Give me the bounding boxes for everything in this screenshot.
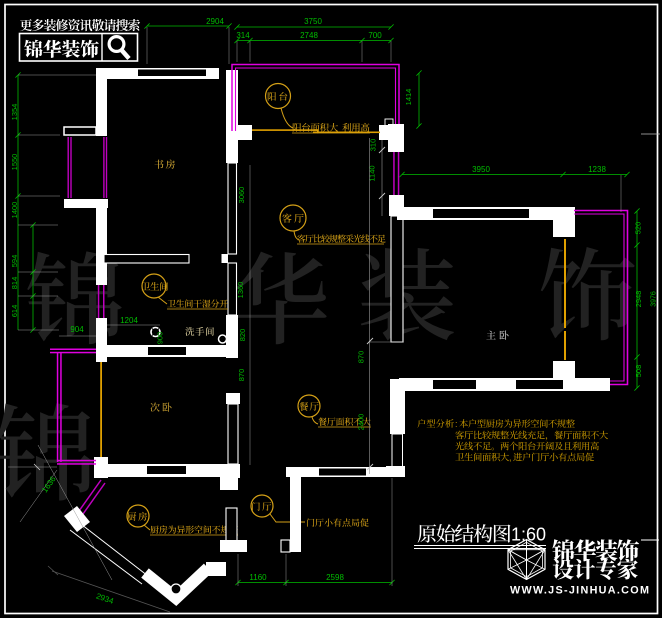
svg-text:700: 700 (368, 31, 382, 40)
svg-text:1204: 1204 (120, 316, 138, 325)
svg-text:820: 820 (238, 329, 247, 342)
svg-text:1:60: 1:60 (511, 525, 546, 545)
svg-text:508: 508 (634, 365, 643, 378)
svg-text:3060: 3060 (237, 187, 246, 204)
svg-text:,: , (509, 453, 512, 463)
svg-text:900: 900 (156, 332, 165, 345)
svg-text:2598: 2598 (326, 573, 344, 582)
svg-text:WWW.JS-JINHUA.COM: WWW.JS-JINHUA.COM (510, 585, 650, 597)
svg-text:3950: 3950 (472, 165, 490, 174)
svg-text:310: 310 (369, 139, 378, 152)
svg-text:1360: 1360 (236, 282, 245, 299)
svg-text:3750: 3750 (304, 17, 322, 26)
svg-text:2904: 2904 (206, 17, 224, 26)
svg-text:2748: 2748 (300, 31, 318, 40)
svg-text:1140: 1140 (368, 165, 377, 181)
svg-text:1160: 1160 (249, 573, 267, 582)
svg-text:2400: 2400 (357, 414, 366, 431)
svg-text:870: 870 (237, 369, 246, 382)
svg-text:1238: 1238 (588, 165, 606, 174)
svg-text:904: 904 (70, 325, 84, 334)
svg-text:870: 870 (357, 351, 366, 364)
svg-text:1414: 1414 (404, 89, 413, 106)
svg-text:3976: 3976 (651, 291, 658, 307)
svg-text:520: 520 (634, 222, 643, 235)
svg-text:2948: 2948 (634, 291, 643, 308)
svg-text::: : (455, 419, 458, 429)
